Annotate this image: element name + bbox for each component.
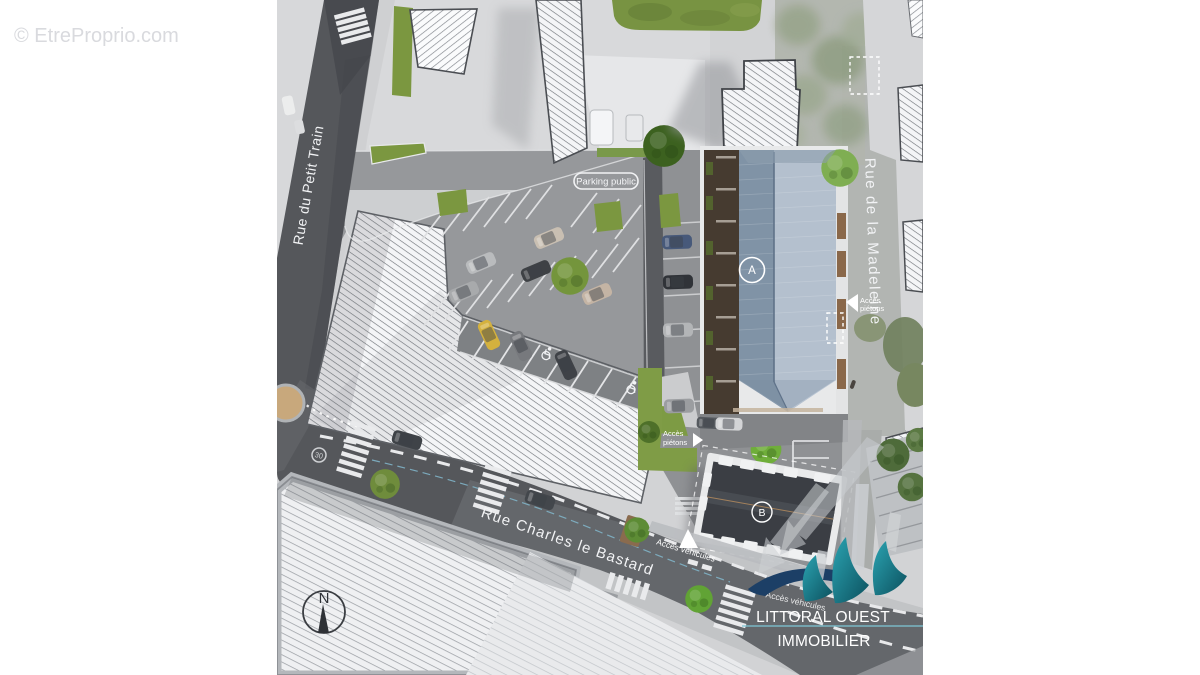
svg-text:A: A	[748, 265, 756, 277]
svg-text:piétons: piétons	[663, 438, 687, 447]
svg-text:piétons: piétons	[860, 304, 884, 313]
svg-text:© EtreProprio.com: © EtreProprio.com	[14, 25, 179, 47]
svg-text:Parking public: Parking public	[576, 177, 636, 188]
svg-text:B: B	[758, 507, 765, 519]
svg-text:Accès: Accès	[663, 429, 684, 438]
svg-text:IMMOBILIER: IMMOBILIER	[777, 633, 870, 650]
svg-text:N: N	[319, 590, 330, 607]
svg-text:LITTORAL OUEST: LITTORAL OUEST	[756, 609, 890, 626]
